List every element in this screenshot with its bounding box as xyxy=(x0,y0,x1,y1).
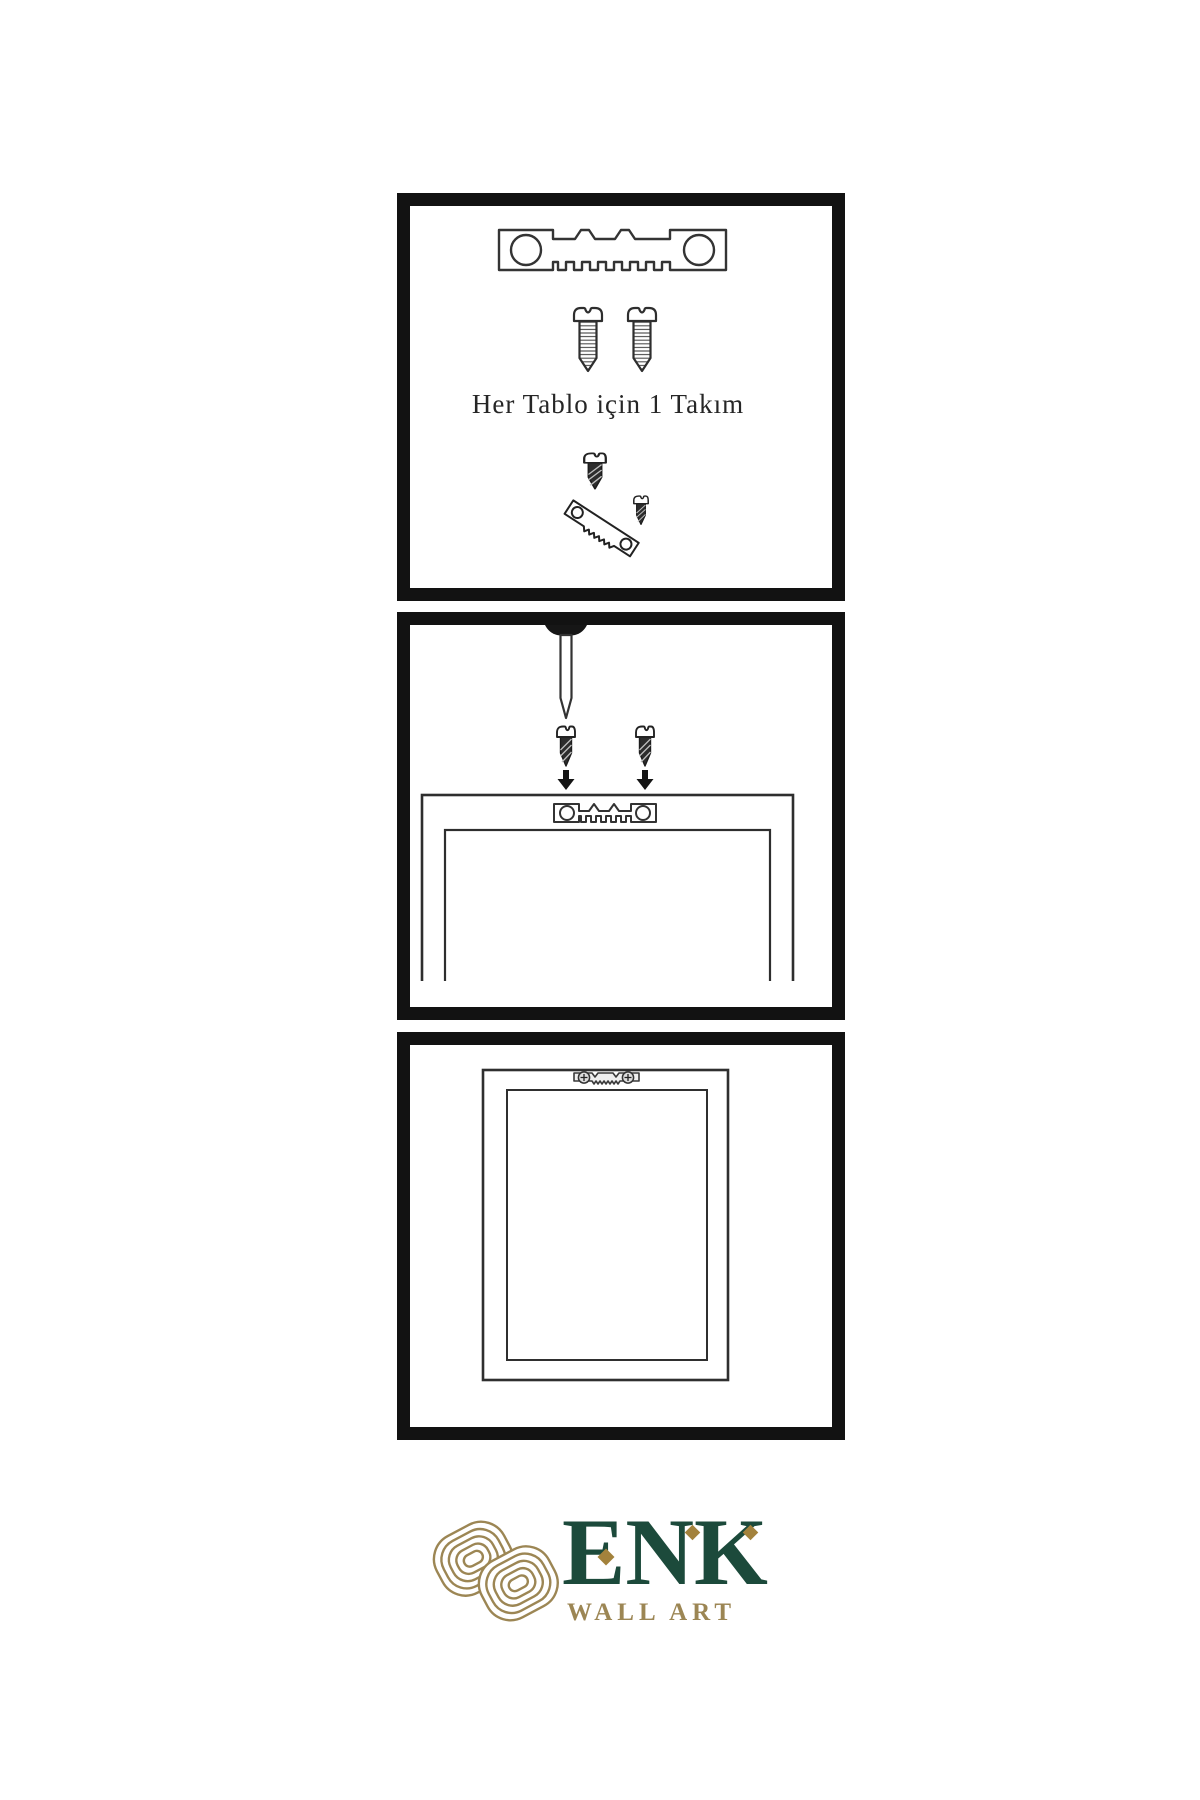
down-arrow-icon xyxy=(637,770,654,790)
frame-back-outline xyxy=(422,795,793,981)
screw-icon xyxy=(636,727,654,767)
down-arrow-icon xyxy=(558,770,575,790)
nail-icon xyxy=(545,625,587,718)
sawtooth-hanger-icon xyxy=(499,230,726,270)
hung-frame-illustration xyxy=(410,1045,806,1401)
panel-hung-frame xyxy=(397,1032,845,1440)
screw-icon xyxy=(557,727,575,767)
knot-logo-icon xyxy=(430,1517,562,1627)
brand-wordmark: ENK xyxy=(562,1505,768,1600)
hardware-kit-illustration xyxy=(410,206,806,562)
instruction-sheet: Her Tablo için 1 Takım xyxy=(0,0,1200,1800)
tilted-sawtooth-hanger-icon xyxy=(562,500,638,559)
brand-logo: ENK WALL ART xyxy=(430,1513,780,1643)
screw-icon xyxy=(584,453,606,489)
frame-front-outline xyxy=(483,1070,728,1380)
panel-mounting-step xyxy=(397,612,845,1020)
kit-label: Her Tablo için 1 Takım xyxy=(410,389,806,420)
mounting-step-illustration xyxy=(410,625,806,981)
screw-icon xyxy=(628,308,656,371)
screw-icon xyxy=(574,308,602,371)
installed-sawtooth-hanger-icon xyxy=(574,1072,639,1084)
brand-tagline: WALL ART xyxy=(567,1599,736,1627)
screw-icon xyxy=(634,496,648,524)
panel-hardware-kit: Her Tablo için 1 Takım xyxy=(397,193,845,601)
